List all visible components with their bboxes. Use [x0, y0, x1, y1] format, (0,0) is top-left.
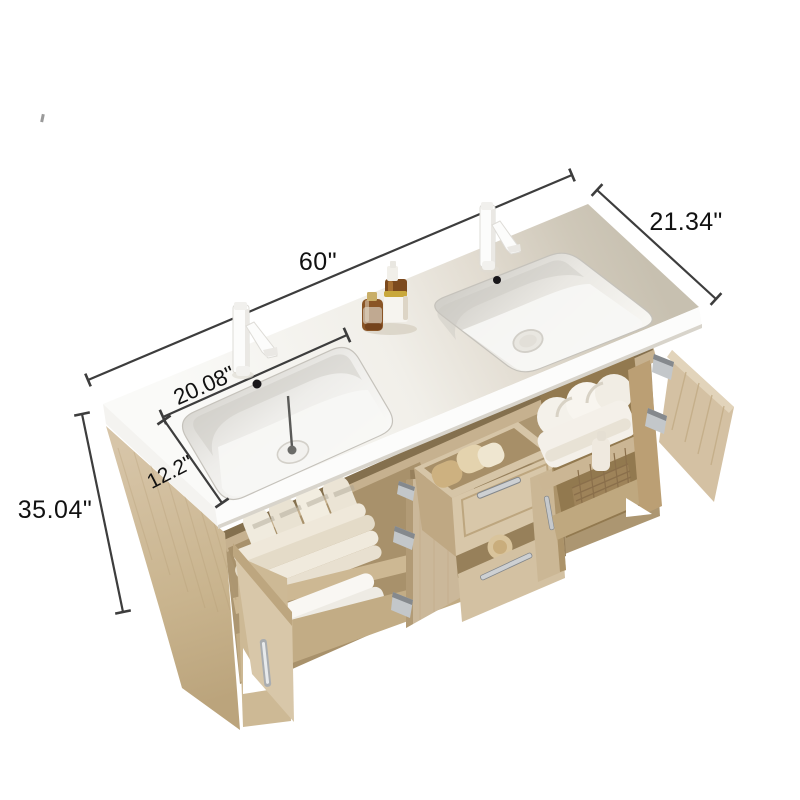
svg-text:21.34": 21.34" — [649, 208, 722, 236]
svg-text:60": 60" — [299, 248, 337, 276]
svg-text:35.04": 35.04" — [18, 496, 92, 524]
